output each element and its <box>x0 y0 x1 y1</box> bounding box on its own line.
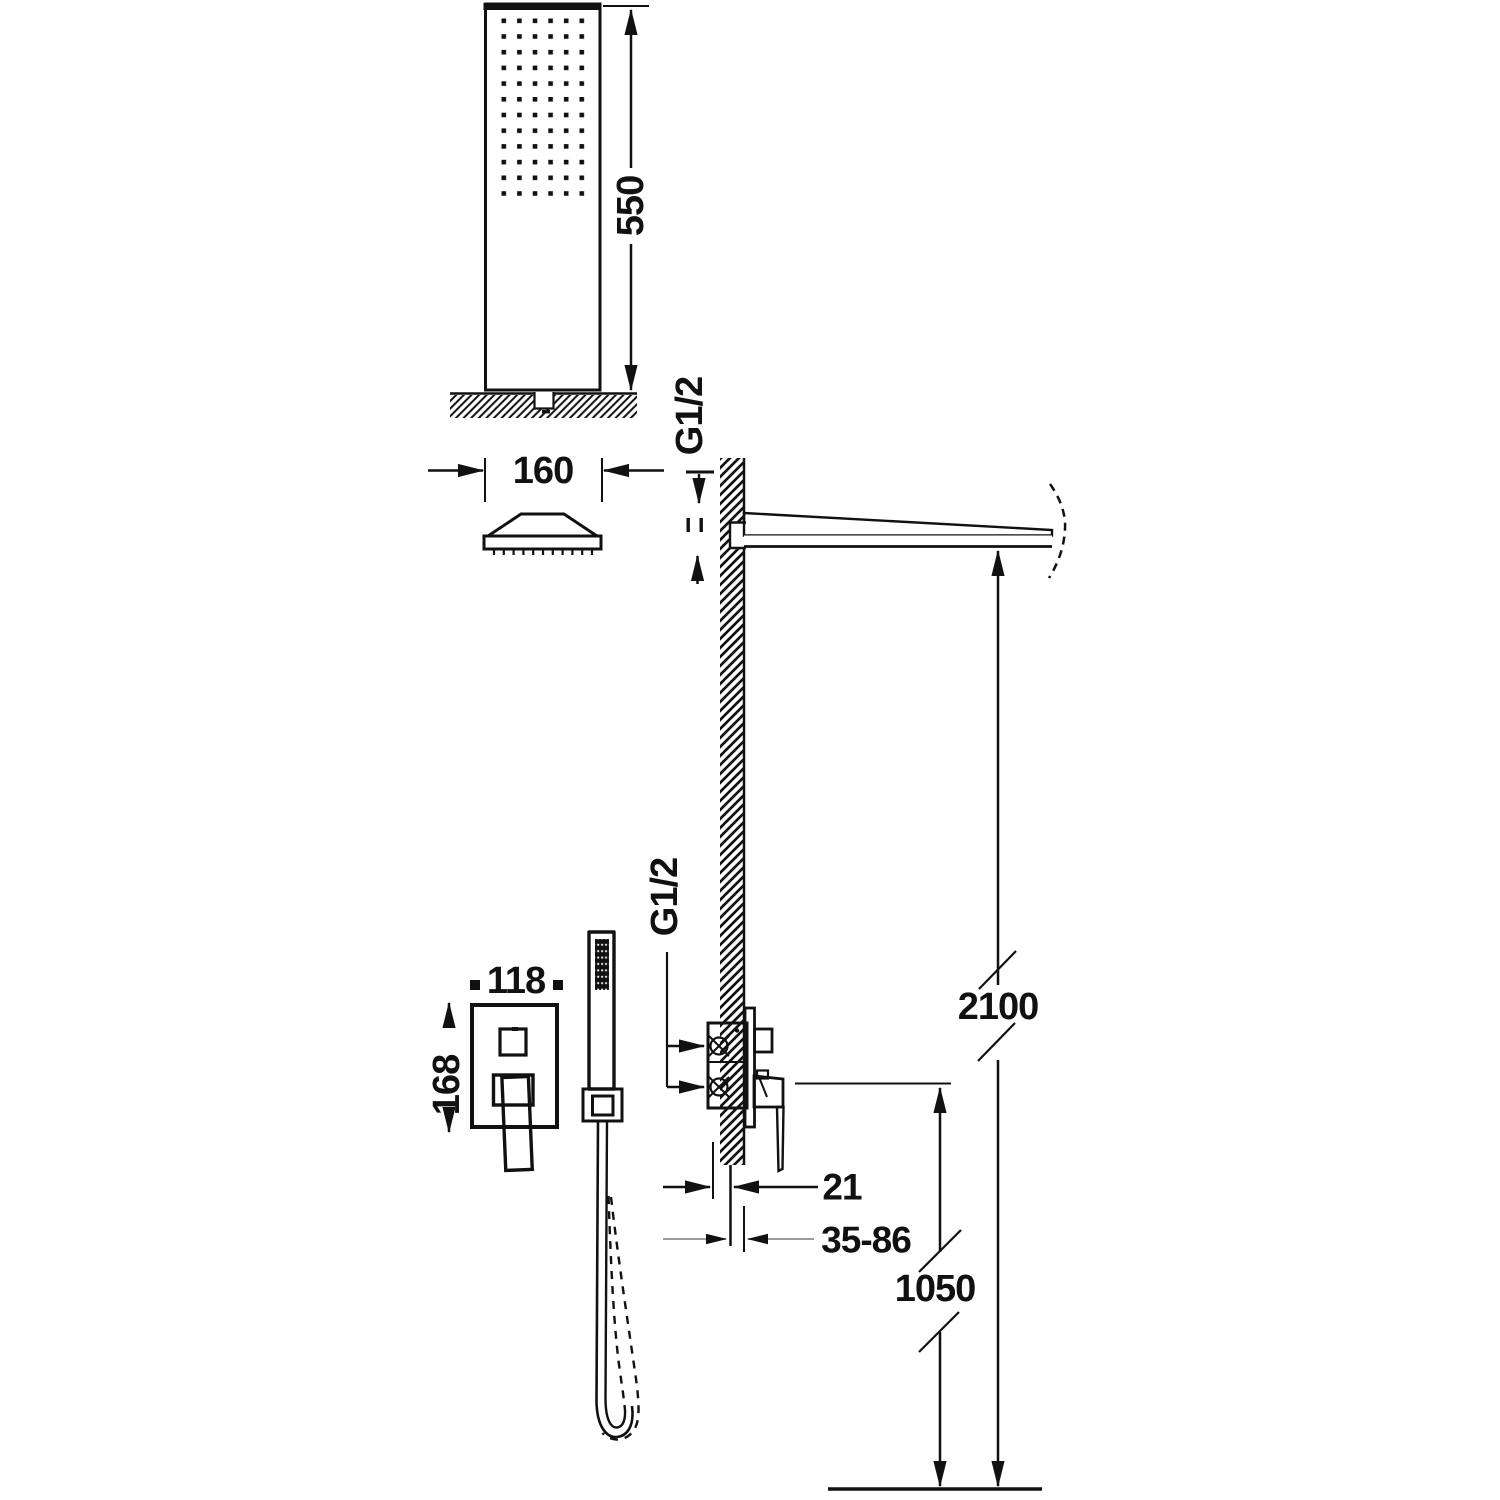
overhead-shower-side-view <box>484 514 601 555</box>
dim-label-118: 118 <box>487 960 545 1002</box>
arm-pipe-fill <box>744 536 1052 547</box>
outlet-notch <box>535 392 554 409</box>
wall-hatch <box>720 458 744 1165</box>
spray-nozzle-grid <box>501 18 586 196</box>
dim-2100: 2100 <box>956 551 1040 1486</box>
dim-550: 550 <box>603 6 652 390</box>
diverter-knob-side <box>755 1029 773 1052</box>
diverter-button-dot <box>512 1027 518 1031</box>
hose-hidden-inner <box>609 1196 625 1405</box>
label-g12-arm: G1/2 <box>669 377 711 455</box>
dim-label-550: 550 <box>610 176 652 236</box>
arm-connection-callout: G1/2 <box>669 377 714 584</box>
dim-label-1050: 1050 <box>895 1268 976 1310</box>
shower-system-diagram: 550 160 G1/2 <box>0 0 1500 1500</box>
hand-shower-nozzles <box>595 939 609 990</box>
hose-hidden-outer <box>603 1197 639 1440</box>
dim-label-2100: 2100 <box>958 986 1039 1028</box>
outlet-stub <box>542 410 550 413</box>
valve-screw-dot <box>735 1028 739 1032</box>
dim-label-21: 21 <box>822 1167 862 1208</box>
overhead-shower-front-view <box>450 4 637 418</box>
lever-hub-edge <box>759 1077 767 1097</box>
mixer-connection-callout: G1/2 <box>644 858 704 1087</box>
dim-21: 21 <box>663 1142 862 1208</box>
hand-shower <box>583 932 639 1440</box>
mixer-front-view: 118 168 <box>426 960 563 1170</box>
lever-hub-side <box>754 1076 783 1107</box>
dim-160: 160 <box>428 450 664 502</box>
shower-head-cap <box>488 514 597 536</box>
label-g12-mixer: G1/2 <box>644 858 686 936</box>
arm-taper <box>744 513 1052 536</box>
g12-arm-ext-tick-1 <box>687 518 690 532</box>
dim-label-168: 168 <box>426 1055 468 1115</box>
mixer-plate <box>472 1005 557 1127</box>
dim-2100-break-bottom <box>978 1023 1015 1061</box>
dim-35-86: 35-86 <box>663 1206 911 1261</box>
shower-arm-side-view <box>729 484 1065 578</box>
dim-label-160: 160 <box>513 450 573 492</box>
dim-label-35-86: 35-86 <box>821 1220 911 1261</box>
wall-section <box>720 458 744 1246</box>
diverter-button <box>500 1029 526 1055</box>
dim-118-end-left <box>470 980 480 990</box>
mixer-valve-side-view <box>708 1008 784 1171</box>
shower-head-nozzle-ticks <box>494 550 592 555</box>
hose-outer-edge <box>597 1121 633 1437</box>
lever-handle-side <box>777 1107 784 1171</box>
dim-118-end-right <box>553 980 563 990</box>
dim-1050: 1050 <box>795 1084 978 1487</box>
g12-arm-ext-tick-2 <box>700 518 703 532</box>
holder-bracket-inner <box>593 1096 614 1115</box>
lever-handle-front <box>502 1076 532 1170</box>
technical-drawing-canvas: 550 160 G1/2 <box>0 0 1500 1500</box>
shower-head-base <box>484 536 601 549</box>
